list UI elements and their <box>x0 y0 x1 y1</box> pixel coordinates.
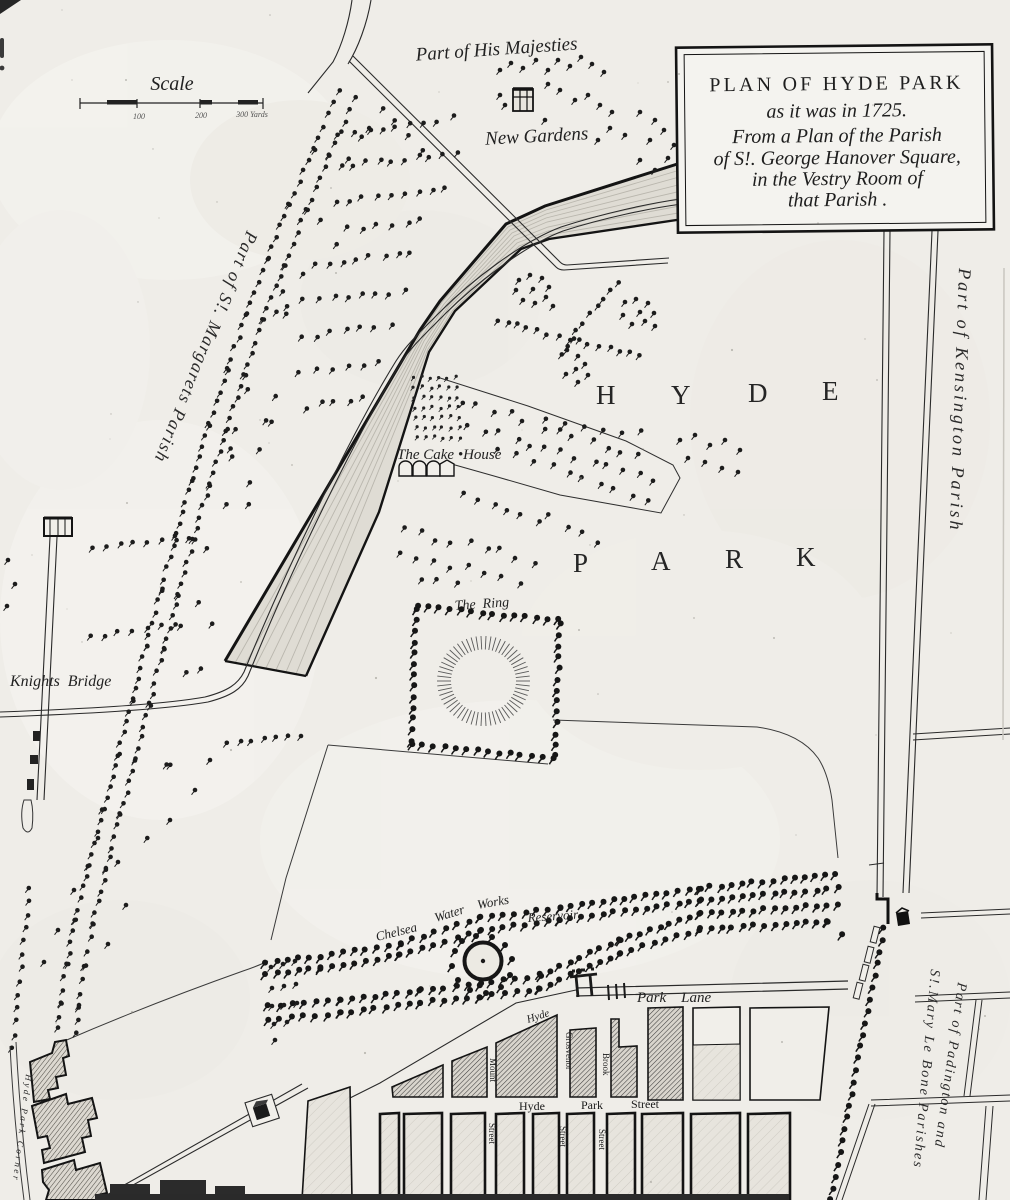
svg-text:E: E <box>822 376 839 406</box>
svg-text:R: R <box>725 544 743 574</box>
svg-text:300 Yards: 300 Yards <box>235 110 268 119</box>
svg-text:Hyde: Hyde <box>519 1099 545 1113</box>
svg-text:The Cake •House: The Cake •House <box>397 447 502 463</box>
svg-text:Park: Park <box>581 1098 603 1112</box>
svg-text:Brook: Brook <box>601 1053 611 1076</box>
svg-text:Y: Y <box>671 380 691 410</box>
svg-text:K: K <box>796 542 816 572</box>
svg-text:Street: Street <box>597 1129 607 1150</box>
svg-text:Street: Street <box>558 1126 568 1147</box>
svg-text:in the Vestry Room of: in the Vestry Room of <box>752 167 926 191</box>
svg-text:Street: Street <box>487 1123 497 1144</box>
svg-text:that Parish .: that Parish . <box>788 188 888 211</box>
svg-text:Scale: Scale <box>150 73 193 95</box>
svg-text:P: P <box>573 548 588 578</box>
svg-text:Knights Bridge: Knights Bridge <box>9 673 111 690</box>
svg-text:From a Plan of the Parish: From a Plan of the Parish <box>731 124 942 148</box>
svg-text:A: A <box>651 546 671 576</box>
svg-text:D: D <box>748 378 768 408</box>
svg-text:of S!. George Hanover Square,: of S!. George Hanover Square, <box>713 146 961 171</box>
svg-text:Grosvenor: Grosvenor <box>564 1032 574 1070</box>
svg-text:Park Lane: Park Lane <box>636 990 712 1006</box>
svg-text:100: 100 <box>133 112 145 121</box>
svg-text:H: H <box>596 380 616 410</box>
svg-text:200: 200 <box>195 111 207 120</box>
svg-text:Mount: Mount <box>488 1058 498 1083</box>
svg-text:as it was in 1725.: as it was in 1725. <box>766 99 907 122</box>
svg-text:PLAN OF HYDE PARK: PLAN OF HYDE PARK <box>709 72 963 97</box>
svg-text:Street: Street <box>631 1097 660 1111</box>
